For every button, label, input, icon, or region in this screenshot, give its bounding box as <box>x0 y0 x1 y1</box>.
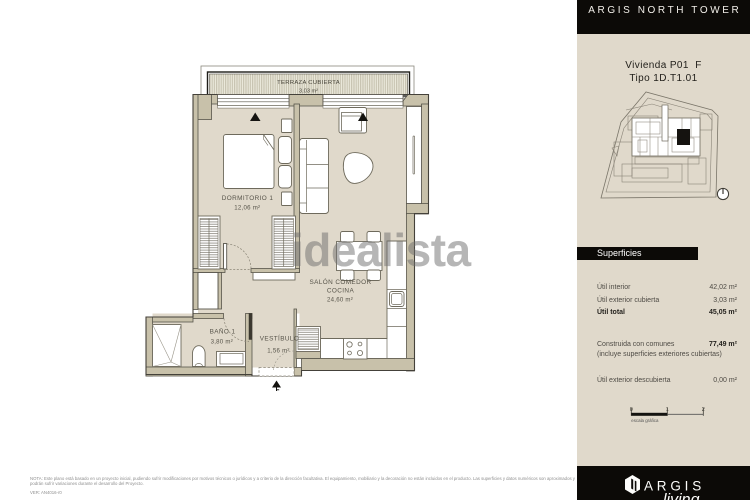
svg-text:12,06 m²: 12,06 m² <box>234 205 260 212</box>
svg-text:3,03 m²: 3,03 m² <box>299 88 318 94</box>
svg-text:24,60 m²: 24,60 m² <box>327 297 353 304</box>
svg-text:1,56 m²: 1,56 m² <box>267 348 289 355</box>
svg-text:COCINA: COCINA <box>327 288 355 295</box>
svg-text:VESTÍBULO: VESTÍBULO <box>260 334 299 343</box>
svg-text:BAÑO 1: BAÑO 1 <box>210 327 236 336</box>
svg-text:3,80 m²: 3,80 m² <box>211 339 233 346</box>
svg-text:SALÓN COMEDOR: SALÓN COMEDOR <box>309 277 371 286</box>
svg-text:DORMITORIO 1: DORMITORIO 1 <box>222 195 274 202</box>
svg-text:living: living <box>663 492 700 500</box>
svg-text:TERRAZA CUBIERTA: TERRAZA CUBIERTA <box>277 80 340 86</box>
svg-text:idealista: idealista <box>291 224 472 276</box>
svg-text:escala gráfica: escala gráfica <box>631 418 659 423</box>
